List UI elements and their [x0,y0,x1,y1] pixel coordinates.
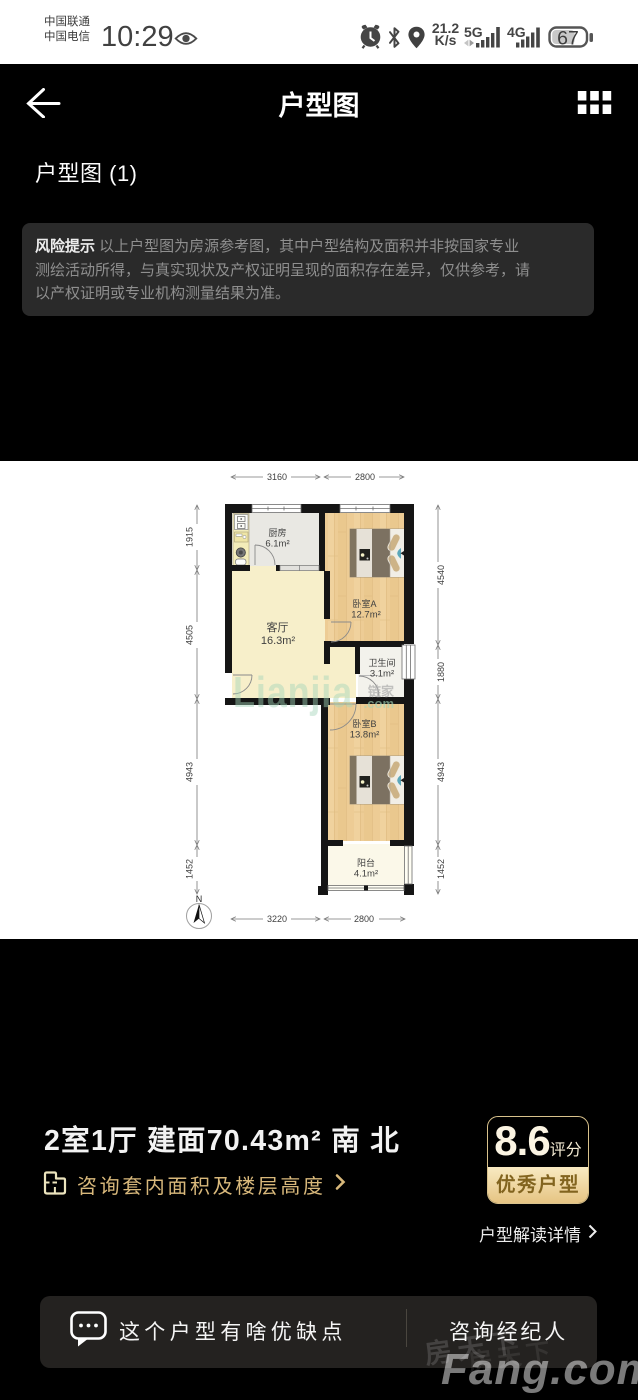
svg-text:4943: 4943 [436,762,446,782]
svg-text:3220: 3220 [267,914,287,924]
svg-text:3.1m²: 3.1m² [370,669,394,680]
svg-text:13.8m²: 13.8m² [350,730,380,741]
svg-text:阳台: 阳台 [357,857,375,868]
svg-text:1452: 1452 [185,859,195,879]
svg-text:4505: 4505 [185,625,195,645]
svg-text:16.3m²: 16.3m² [261,635,296,647]
svg-text:4943: 4943 [185,762,195,782]
svg-text:卧室B: 卧室B [352,718,376,729]
svg-text:.com: .com [364,696,394,711]
svg-text:卧室A: 卧室A [352,598,376,609]
svg-text:67: 67 [557,28,579,49]
svg-text:1880: 1880 [436,662,446,682]
svg-text:厨房: 厨房 [268,527,286,538]
svg-text:4.1m²: 4.1m² [354,869,378,880]
svg-text:1452: 1452 [436,859,446,879]
svg-text:12.7m²: 12.7m² [351,610,381,621]
svg-text:1915: 1915 [185,527,195,547]
svg-text:2800: 2800 [355,472,375,482]
svg-text:6.1m²: 6.1m² [265,539,289,550]
svg-text:客厅: 客厅 [267,620,289,634]
svg-text:4540: 4540 [436,565,446,585]
svg-text:Lianjia: Lianjia [233,668,353,717]
svg-text:3160: 3160 [267,472,287,482]
svg-text:卫生间: 卫生间 [368,657,395,668]
svg-text:N: N [196,894,203,904]
svg-text:2800: 2800 [354,914,374,924]
